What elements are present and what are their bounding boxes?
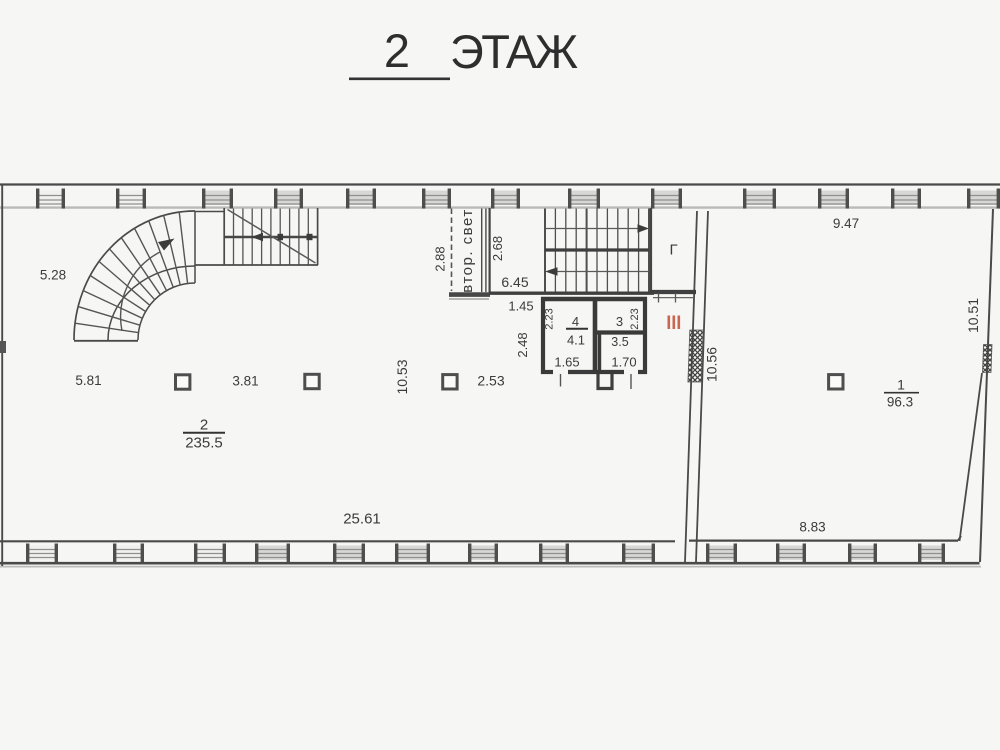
svg-text:4: 4 [572,314,579,329]
svg-text:1.45: 1.45 [508,299,533,314]
svg-text:96.3: 96.3 [887,395,913,410]
svg-text:10.53: 10.53 [394,359,410,394]
svg-text:2.88: 2.88 [433,246,448,271]
svg-text:3: 3 [616,314,623,329]
svg-text:ЭТАЖ: ЭТАЖ [450,25,578,78]
svg-text:втор. свет: втор. свет [459,208,476,292]
svg-text:8.83: 8.83 [799,520,825,535]
svg-text:3.81: 3.81 [232,374,258,389]
svg-text:3.5: 3.5 [611,335,628,349]
svg-text:1.70: 1.70 [611,355,636,370]
svg-text:2.68: 2.68 [490,236,505,261]
svg-text:235.5: 235.5 [185,435,223,452]
svg-text:2.48: 2.48 [515,332,530,357]
svg-text:6.45: 6.45 [501,274,528,290]
svg-text:10.56: 10.56 [704,347,720,382]
svg-text:25.61: 25.61 [343,511,381,528]
svg-text:2: 2 [200,417,208,434]
svg-text:2.23: 2.23 [544,308,556,329]
svg-text:2: 2 [384,24,410,77]
svg-text:9.47: 9.47 [833,216,859,231]
svg-text:10.51: 10.51 [965,298,981,333]
svg-text:1: 1 [897,377,905,393]
svg-text:2.23: 2.23 [629,308,641,329]
svg-text:4.1: 4.1 [567,333,585,348]
svg-text:1.65: 1.65 [554,355,579,370]
svg-text:5.28: 5.28 [40,268,66,283]
svg-text:Г: Г [669,242,677,259]
svg-text:5.81: 5.81 [75,373,101,388]
svg-text:2.53: 2.53 [477,373,504,389]
